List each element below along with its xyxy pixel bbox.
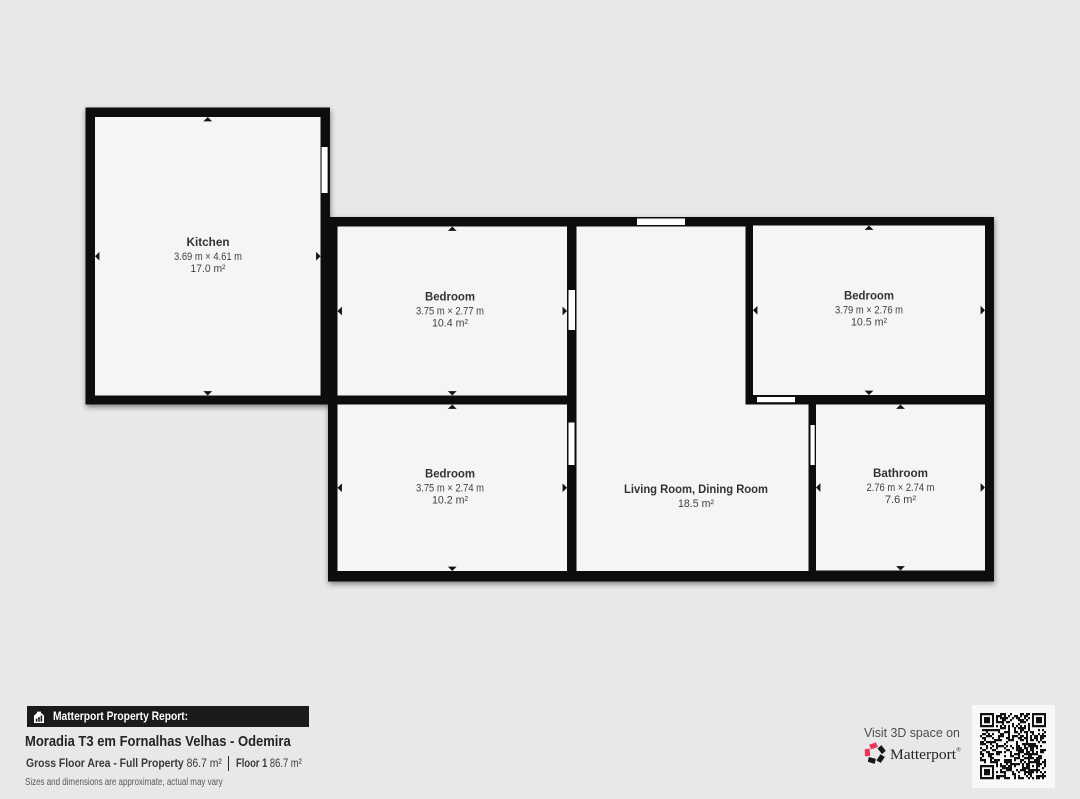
svg-text:10.5 m²: 10.5 m² — [851, 317, 887, 329]
svg-text:7.6 m²: 7.6 m² — [885, 494, 916, 506]
svg-text:Bedroom: Bedroom — [425, 466, 475, 480]
svg-text:3.69 m × 4.61 m: 3.69 m × 4.61 m — [174, 251, 242, 263]
svg-text:Kitchen: Kitchen — [187, 235, 230, 249]
svg-text:17.0 m²: 17.0 m² — [191, 263, 226, 275]
svg-text:3.75 m × 2.74 m: 3.75 m × 2.74 m — [416, 482, 484, 494]
svg-text:Bathroom: Bathroom — [873, 466, 928, 480]
svg-text:3.79 m × 2.76 m: 3.79 m × 2.76 m — [835, 305, 903, 317]
svg-text:Bedroom: Bedroom — [844, 289, 894, 303]
svg-text:2.76 m × 2.74 m: 2.76 m × 2.74 m — [867, 482, 935, 494]
svg-text:10.4 m²: 10.4 m² — [432, 318, 468, 330]
svg-text:18.5 m²: 18.5 m² — [678, 498, 714, 510]
svg-text:Living Room, Dining Room: Living Room, Dining Room — [624, 482, 768, 496]
svg-text:10.2 m²: 10.2 m² — [432, 494, 468, 506]
svg-text:3.75 m × 2.77 m: 3.75 m × 2.77 m — [416, 306, 484, 318]
svg-text:Bedroom: Bedroom — [425, 290, 475, 304]
